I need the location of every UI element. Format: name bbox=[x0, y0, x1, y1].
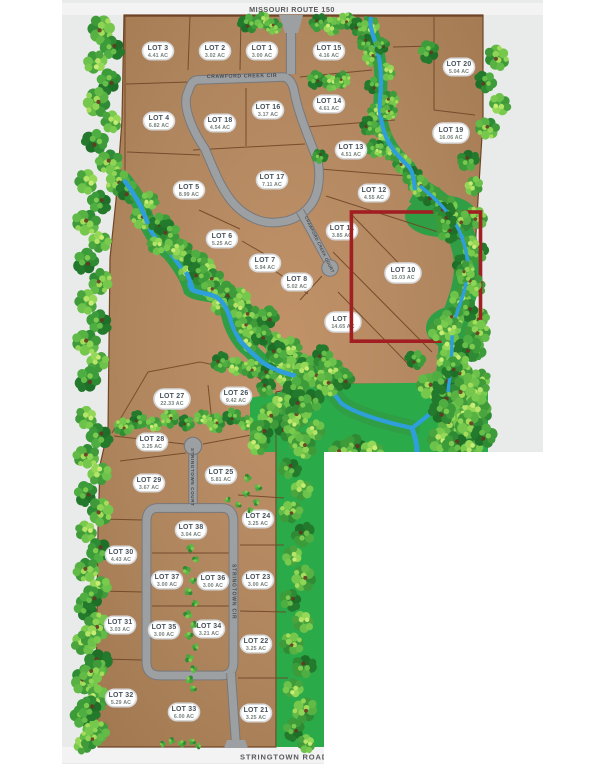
svg-text:6.82 AC: 6.82 AC bbox=[149, 123, 169, 129]
svg-text:16.06 AC: 16.06 AC bbox=[439, 135, 462, 141]
svg-text:3.67 AC: 3.67 AC bbox=[139, 485, 159, 491]
svg-text:LOT 20: LOT 20 bbox=[447, 61, 472, 68]
svg-text:LOT 10: LOT 10 bbox=[391, 267, 416, 274]
svg-text:3.17 AC: 3.17 AC bbox=[258, 112, 278, 118]
svg-text:LOT 23: LOT 23 bbox=[246, 574, 271, 581]
svg-text:LOT 27: LOT 27 bbox=[160, 393, 185, 400]
svg-text:LOT 6: LOT 6 bbox=[212, 233, 233, 240]
svg-text:4.61 AC: 4.61 AC bbox=[319, 106, 339, 112]
svg-text:15.03 AC: 15.03 AC bbox=[391, 275, 414, 281]
svg-text:3.25 AC: 3.25 AC bbox=[142, 444, 162, 450]
svg-text:LOT 22: LOT 22 bbox=[244, 638, 269, 645]
svg-text:LOT 8: LOT 8 bbox=[287, 276, 308, 283]
svg-text:STRINGTOWN ROAD: STRINGTOWN ROAD bbox=[240, 753, 328, 762]
svg-text:LOT 37: LOT 37 bbox=[155, 574, 180, 581]
svg-text:MISSOURI ROUTE 150: MISSOURI ROUTE 150 bbox=[249, 5, 335, 14]
svg-text:5.02 AC: 5.02 AC bbox=[287, 284, 307, 290]
svg-text:LOT 34: LOT 34 bbox=[197, 623, 222, 630]
svg-text:LOT 15: LOT 15 bbox=[317, 45, 342, 52]
svg-text:LOT 35: LOT 35 bbox=[152, 624, 177, 631]
svg-text:3.00 AC: 3.00 AC bbox=[157, 582, 177, 588]
svg-text:4.43 AC: 4.43 AC bbox=[111, 557, 131, 563]
svg-text:LOT 14: LOT 14 bbox=[317, 98, 342, 105]
svg-text:LOT 36: LOT 36 bbox=[201, 575, 226, 582]
svg-text:5.81 AC: 5.81 AC bbox=[211, 477, 231, 483]
svg-text:3.00 AC: 3.00 AC bbox=[154, 632, 174, 638]
svg-text:5.04 AC: 5.04 AC bbox=[449, 69, 469, 75]
svg-text:LOT 18: LOT 18 bbox=[208, 117, 233, 124]
svg-text:LOT 26: LOT 26 bbox=[224, 390, 249, 397]
svg-text:7.11 AC: 7.11 AC bbox=[262, 182, 282, 188]
svg-text:STRINGTOWN CIR: STRINGTOWN CIR bbox=[230, 564, 236, 619]
svg-text:3.00 AC: 3.00 AC bbox=[248, 582, 268, 588]
svg-text:9.42 AC: 9.42 AC bbox=[226, 398, 246, 404]
svg-text:LOT 3: LOT 3 bbox=[148, 45, 169, 52]
svg-text:LOT 38: LOT 38 bbox=[179, 524, 204, 531]
svg-text:LOT 2: LOT 2 bbox=[205, 45, 226, 52]
svg-text:3.25 AC: 3.25 AC bbox=[246, 715, 266, 721]
svg-text:LOT 5: LOT 5 bbox=[179, 184, 200, 191]
svg-text:8.99 AC: 8.99 AC bbox=[179, 192, 199, 198]
svg-text:CRAWFORD CREEK CIR: CRAWFORD CREEK CIR bbox=[207, 73, 278, 80]
svg-text:LOT 4: LOT 4 bbox=[149, 115, 170, 122]
svg-text:3.85 AC: 3.85 AC bbox=[332, 233, 352, 239]
svg-text:5.29 AC: 5.29 AC bbox=[111, 700, 131, 706]
svg-text:3.25 AC: 3.25 AC bbox=[246, 646, 266, 652]
svg-text:3.25 AC: 3.25 AC bbox=[248, 521, 268, 527]
svg-text:5.25 AC: 5.25 AC bbox=[212, 241, 232, 247]
svg-text:6.00 AC: 6.00 AC bbox=[174, 714, 194, 720]
svg-text:3.02 AC: 3.02 AC bbox=[205, 53, 225, 59]
svg-text:LOT 17: LOT 17 bbox=[260, 174, 285, 181]
svg-text:LOT 12: LOT 12 bbox=[362, 187, 387, 194]
svg-text:3.00 AC: 3.00 AC bbox=[252, 53, 272, 59]
svg-text:LOT 33: LOT 33 bbox=[172, 706, 197, 713]
svg-text:LOT 31: LOT 31 bbox=[108, 619, 133, 626]
svg-text:5.94 AC: 5.94 AC bbox=[255, 265, 275, 271]
svg-text:STRINGTOWN COURT: STRINGTOWN COURT bbox=[190, 448, 195, 507]
svg-text:3.00 AC: 3.00 AC bbox=[203, 583, 223, 589]
svg-text:3.03 AC: 3.03 AC bbox=[110, 627, 130, 633]
svg-text:LOT 21: LOT 21 bbox=[244, 707, 269, 714]
svg-text:3.04 AC: 3.04 AC bbox=[181, 532, 201, 538]
svg-text:LOT 13: LOT 13 bbox=[339, 144, 364, 151]
svg-text:LOT 1: LOT 1 bbox=[252, 45, 273, 52]
svg-text:LOT 24: LOT 24 bbox=[246, 513, 271, 520]
svg-text:LOT 32: LOT 32 bbox=[109, 692, 134, 699]
svg-text:LOT 29: LOT 29 bbox=[137, 477, 162, 484]
svg-text:3.21 AC: 3.21 AC bbox=[199, 631, 219, 637]
svg-text:4.55 AC: 4.55 AC bbox=[364, 195, 384, 201]
svg-text:LOT 16: LOT 16 bbox=[256, 104, 281, 111]
svg-text:4.16 AC: 4.16 AC bbox=[319, 53, 339, 59]
svg-text:LOT 28: LOT 28 bbox=[140, 436, 165, 443]
svg-text:4.41 AC: 4.41 AC bbox=[148, 53, 168, 59]
svg-text:LOT 19: LOT 19 bbox=[439, 127, 464, 134]
svg-text:LOT 30: LOT 30 bbox=[109, 549, 134, 556]
svg-text:LOT 25: LOT 25 bbox=[209, 469, 234, 476]
svg-text:4.51 AC: 4.51 AC bbox=[341, 152, 361, 158]
svg-text:LOT 7: LOT 7 bbox=[255, 257, 276, 264]
svg-text:22.33 AC: 22.33 AC bbox=[160, 401, 183, 407]
svg-text:4.54 AC: 4.54 AC bbox=[210, 125, 230, 131]
